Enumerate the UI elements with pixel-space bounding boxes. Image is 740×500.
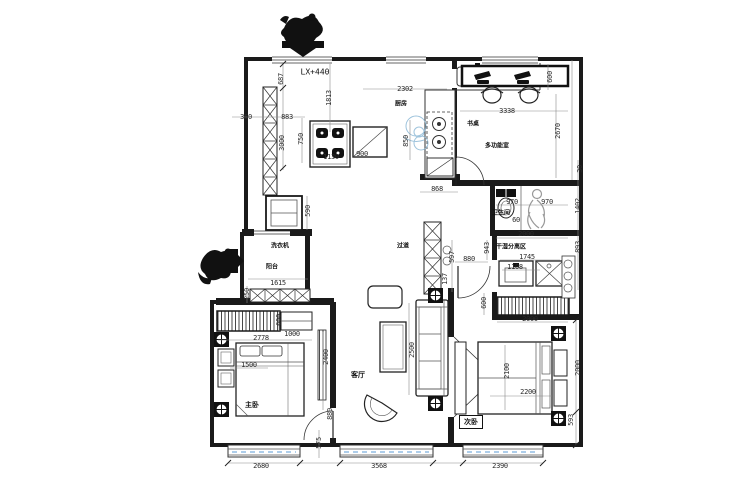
dimension-label: 593 — [567, 414, 575, 426]
side-table — [368, 286, 402, 308]
dimension-label: 687 — [277, 73, 285, 85]
room-label-multi-room: 多功能室 — [485, 141, 509, 150]
ornament-figure-icon — [280, 14, 324, 58]
top-windows — [272, 55, 538, 63]
room-label-living-room: 客厅 — [351, 370, 365, 380]
tall-cabinet — [263, 87, 277, 195]
room-tag-second-bedroom: 次卧 — [459, 415, 483, 429]
dimension-label: 2400 — [322, 349, 330, 365]
floor-plan-drawing — [0, 0, 740, 500]
bottom-windows — [228, 445, 543, 457]
wardrobe-second — [497, 297, 569, 315]
dimension-label: 2000 — [518, 230, 534, 238]
dimension-label: 137 — [441, 273, 449, 285]
dimension-label: 850 — [402, 135, 410, 147]
dimension-label: 2390 — [492, 462, 508, 470]
room-label-dry-zone: 干湿分离区 — [496, 242, 526, 251]
dimension-label: 3568 — [371, 462, 387, 470]
dimension-label: 1108 — [507, 263, 523, 271]
room-label-master-bedroom: 主卧 — [245, 400, 259, 410]
balcony-rail — [250, 289, 310, 302]
dimension-label: 1813 — [325, 90, 333, 106]
dimension-label: 1130 — [323, 153, 339, 161]
dimension-label: 575 — [315, 437, 323, 449]
dimension-label: 2000 — [574, 360, 582, 376]
dimension-label: 600 — [480, 297, 488, 309]
dimension-label: 868 — [431, 185, 443, 193]
dimension-label: 943 — [483, 242, 491, 254]
dimension-label: 2000 — [522, 315, 538, 323]
room-label-balcony: 阳台 — [266, 262, 278, 271]
radiator — [318, 330, 326, 400]
washing-machine — [536, 261, 563, 286]
dimension-label: 900 — [356, 150, 368, 158]
dimension-label: 750 — [297, 133, 305, 145]
level-label: LX+440 — [301, 68, 330, 77]
dimension-label: 1000 — [284, 330, 300, 338]
dimension-label: 60 — [512, 216, 520, 224]
dimension-label: 970 — [506, 198, 518, 206]
room-label-kitchen: 厨房 — [395, 99, 407, 108]
dimension-label: 893 — [574, 241, 582, 253]
dimension-label: 350 — [240, 113, 252, 121]
dimension-label: 2778 — [253, 334, 269, 342]
dimension-label: 2500 — [408, 342, 416, 358]
dimension-label: 2200 — [520, 388, 536, 396]
dimension-label: 1615 — [270, 279, 286, 287]
dimension-label: 597 — [448, 251, 456, 263]
dimension-label: 30 — [576, 165, 584, 173]
dimension-label: 2100 — [503, 363, 511, 379]
dimension-label: 880 — [326, 408, 334, 420]
dimension-label: 250 — [243, 288, 251, 300]
dimension-label: 880 — [463, 255, 475, 263]
wardrobe-master — [217, 311, 312, 331]
dimension-label: 2670 — [554, 123, 562, 139]
room-label-bathroom: 卫生间 — [492, 208, 510, 217]
dimension-label: 1402 — [574, 198, 582, 214]
dimension-label: 590 — [304, 205, 312, 217]
dimension-label: 970 — [541, 198, 553, 206]
room-label-desk: 书桌 — [467, 119, 479, 128]
dimension-label: 2680 — [253, 462, 269, 470]
shelf — [562, 256, 575, 298]
coffee-table — [380, 322, 406, 372]
dimension-label: 600 — [275, 314, 283, 326]
dimension-label: 3338 — [499, 107, 515, 115]
dimension-label: 883 — [281, 113, 293, 121]
sofa — [416, 300, 448, 396]
dimension-label: 1500 — [241, 361, 257, 369]
room-label-corridor: 过道 — [397, 241, 409, 250]
dimension-label: 2302 — [397, 85, 413, 93]
person-figure-icon — [198, 249, 237, 285]
fridge — [266, 196, 302, 230]
floor-plan: LX+440 厨房 书桌 多功能室 卫生间 干湿分离区 过道 洗衣机 阳台 客厅… — [0, 0, 740, 500]
room-label-washer: 洗衣机 — [271, 241, 289, 250]
dimension-label: 1745 — [519, 253, 535, 261]
dimension-label: 600 — [546, 71, 554, 83]
dimension-label: 3000 — [278, 135, 286, 151]
